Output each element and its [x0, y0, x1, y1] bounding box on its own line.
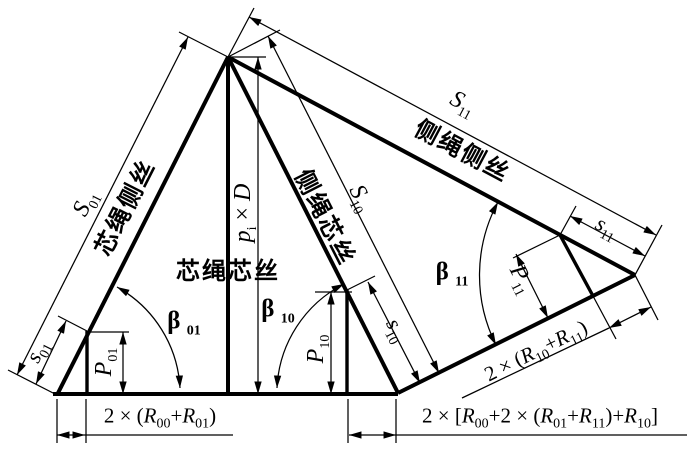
- label-beta10: β 10: [261, 297, 294, 322]
- label-beta11: β 11: [436, 260, 469, 285]
- label-dim-r00-r01: 2 × (R00+R01): [104, 406, 216, 427]
- label-core-core-wire: 芯绳芯丝: [176, 260, 280, 284]
- label-dim-total: 2 × [R00+2 × (R01+R11)+R10]: [422, 406, 658, 427]
- dim-r10-r11: [609, 307, 651, 328]
- arc-beta11: [480, 202, 498, 345]
- label-P01: P01: [92, 348, 116, 377]
- label-pitch-pi-d: pi × D: [231, 184, 255, 243]
- arc-beta01: [117, 287, 180, 388]
- label-P10: P10: [304, 335, 328, 364]
- lay-geometry-diagram: 芯绳侧丝 芯绳芯丝 侧绳芯丝 侧绳侧丝 S01 S10 S11 s01 s10 …: [0, 0, 700, 460]
- side-side-wire-line: [228, 57, 635, 275]
- core-side-wire-line: [57, 57, 228, 395]
- label-beta01: β 01: [167, 309, 200, 334]
- dim-S01: [17, 37, 188, 375]
